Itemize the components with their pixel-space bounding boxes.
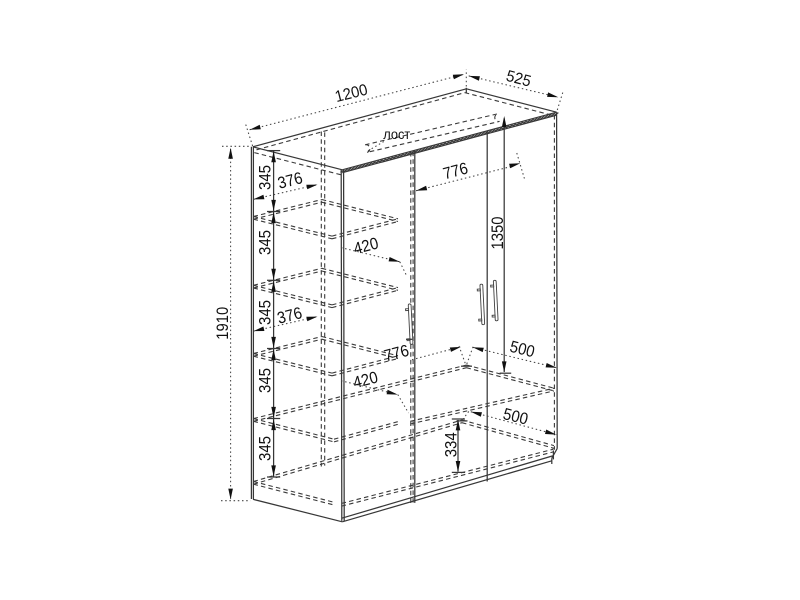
svg-text:1350: 1350 [489,217,507,250]
svg-text:1910: 1910 [214,307,232,340]
svg-text:лост: лост [383,127,411,142]
svg-text:345: 345 [257,165,275,190]
svg-text:345: 345 [257,230,275,255]
svg-text:345: 345 [257,300,275,325]
svg-text:345: 345 [257,368,275,393]
svg-text:334: 334 [442,432,460,457]
svg-text:345: 345 [257,436,275,461]
